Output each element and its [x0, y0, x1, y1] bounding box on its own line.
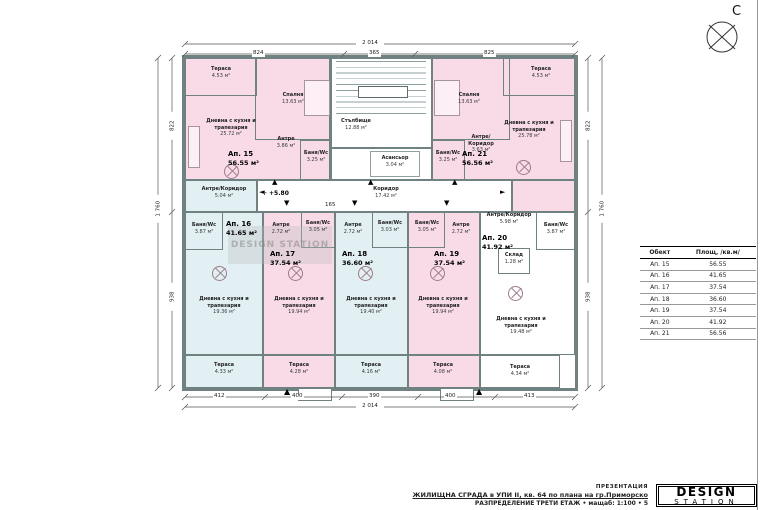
cell-object: Ап. 18: [640, 293, 680, 305]
room-label-bath-19: Баня/Wc 3.05 м²: [410, 220, 444, 233]
apartment-id: Ап. 17: [270, 250, 310, 259]
apartment-id: Ап. 18: [342, 250, 382, 259]
room-area: 2.72 м²: [266, 229, 296, 236]
room-area: 5.04 м²: [196, 193, 252, 200]
dim-right-total: 1 760: [600, 195, 606, 223]
room-area: 2.72 м²: [338, 229, 368, 236]
table-row: Ап. 18 36.60: [640, 293, 756, 305]
room-label-bath-15: Баня/Wc 3.25 м²: [301, 150, 331, 163]
room-area: 25.72 м²: [200, 131, 262, 138]
sofa-furniture: [560, 120, 572, 162]
room-label-antre-17: Антре 2.72 м²: [266, 222, 296, 235]
room-label-bath-21: Баня/Wc 3.25 м²: [433, 150, 463, 163]
room-area: 19.40 м²: [342, 309, 400, 316]
room-area: 4.08 м²: [424, 369, 462, 376]
cell-object: Ап. 19: [640, 305, 680, 317]
cell-object: Ап. 20: [640, 316, 680, 328]
title-block: ПРЕЗЕНТАЦИЯ ЖИЛИЩНА СГРАДА в УПИ II, кв.…: [340, 484, 648, 507]
room-name: Дневна с кухня и трапезария: [200, 118, 262, 131]
cell-area: 56.55: [680, 259, 756, 271]
table-row: Ап. 16 41.65: [640, 270, 756, 282]
room-area: 3.05 м²: [410, 227, 444, 234]
room-label-bedroom-15: Спалня 13.63 м²: [268, 92, 318, 105]
dining-table-icon: [358, 266, 373, 281]
room-label-terrace-17: Тераса 4.28 м²: [280, 362, 318, 375]
dim-left-seg: 938: [170, 283, 176, 311]
room-area: 3.25 м²: [433, 157, 463, 164]
dim-bottom-seg: 400: [291, 394, 304, 400]
dim-bottom-seg: 390: [368, 394, 381, 400]
dining-table-icon: [212, 266, 227, 281]
design-station-logo: DESIGN STATION: [656, 484, 757, 507]
room-area: 4.16 м²: [352, 369, 390, 376]
room-area: 2.72 м²: [446, 229, 476, 236]
right-arrow-icon: ►: [500, 189, 505, 196]
entrance-arrow-icon: ▲: [476, 388, 482, 396]
apartment-id: Ап. 20: [482, 234, 524, 243]
room-label-antre-19: Антре 2.72 м²: [446, 222, 476, 235]
service-rooms-zone: [512, 180, 575, 212]
room-label-corridor: Коридор 17.42 м²: [358, 186, 414, 199]
table-row: Ап. 21 56.56: [640, 328, 756, 340]
room-label-antre-18: Антре 2.72 м²: [338, 222, 368, 235]
room-area: 4.53 м²: [516, 73, 566, 80]
room-label-elevator: Асансьор 3.04 м²: [370, 155, 420, 168]
room-area: 17.42 м²: [358, 193, 414, 200]
presentation-label: ПРЕЗЕНТАЦИЯ: [340, 484, 648, 491]
down-arrow-icon: ▼: [284, 200, 289, 207]
room-label-terrace-16: Тераса 4.33 м²: [202, 362, 246, 375]
up-arrow-icon: ▲: [272, 179, 277, 186]
dim-left-total: 1 760: [156, 195, 162, 223]
dim-left-seg: 822: [170, 112, 176, 140]
dim-bottom-seg: 413: [523, 394, 536, 400]
apartment-area-table: Обект Площ, /кв.м/ Ап. 15 56.55 Ап. 16 4…: [640, 246, 756, 340]
cell-object: Ап. 21: [640, 328, 680, 340]
sofa-furniture: [188, 126, 200, 168]
compass-icon: [702, 16, 744, 60]
apartment-area: 37.54 м²: [434, 259, 474, 267]
room-label-bath-17: Баня/Wc 3.05 м²: [302, 220, 334, 233]
room-area: 4.33 м²: [202, 369, 246, 376]
level-marker: ✛ +5.80: [262, 190, 289, 197]
table-header-area: Площ, /кв.м/: [680, 247, 756, 259]
cell-area: 41.92: [680, 316, 756, 328]
dining-table-icon: [508, 286, 523, 301]
room-name: Дневна с кухня и трапезария: [196, 296, 252, 309]
apartment-18-label: Ап. 18 36.60 м²: [342, 250, 382, 267]
dim-right-seg: 822: [586, 112, 592, 140]
room-area: 3.25 м²: [301, 157, 331, 164]
room-name: Дневна с кухня и трапезария: [342, 296, 400, 309]
room-area: 3.87 м²: [187, 229, 221, 236]
room-name: Антре/Коридор: [482, 212, 536, 219]
apartment-area: 56.56 м²: [462, 159, 504, 167]
room-label-bedroom-21: Спалня 13.63 м²: [444, 92, 494, 105]
apartment-20-label: Ап. 20 41.92 м²: [482, 234, 524, 251]
room-name: Дневна с кухня и трапезария: [414, 296, 472, 309]
room-name: Баня/Wc: [410, 220, 444, 227]
sheet-title: РАЗПРЕДЕЛЕНИЕ ТРЕТИ ЕТАЖ • мащаб: 1:100 …: [340, 500, 648, 508]
room-area: 3.04 м²: [370, 162, 420, 169]
room-label-living-21: Дневна с кухня и трапезария 25.78 м²: [498, 120, 560, 140]
logo-text-design: DESIGN: [676, 486, 736, 498]
apartment-19-label: Ап. 19 37.54 м²: [434, 250, 474, 267]
room-label-staircase: Стълбище 12.88 м²: [334, 118, 378, 131]
room-label-antre-16: Антре/Коридор 5.04 м²: [196, 186, 252, 199]
dim-top-seg: 825: [483, 51, 496, 57]
dim-bottom-total: 2 014: [356, 404, 384, 410]
floor-plan-page: ▲ ▲ DESIGN STATION Тераса 4.53 м² Спалня…: [0, 0, 764, 510]
room-area: 3.86 м²: [272, 143, 300, 150]
apartment-id: Ап. 15: [228, 150, 270, 159]
room-label-living-18: Дневна с кухня и трапезария 19.40 м²: [342, 296, 400, 316]
left-arrow-icon: ◄: [259, 189, 264, 196]
room-area: 4.28 м²: [280, 369, 318, 376]
room-area: 3.05 м²: [302, 227, 334, 234]
cell-area: 37.54: [680, 305, 756, 317]
stair-landing: [358, 86, 408, 98]
cell-area: 41.65: [680, 270, 756, 282]
cell-area: 56.56: [680, 328, 756, 340]
room-label-living-15: Дневна с кухня и трапезария 25.72 м²: [200, 118, 262, 138]
table-header-object: Обект: [640, 247, 680, 259]
room-name: Антре/Коридор: [462, 134, 500, 147]
table-row: Ап. 20 41.92: [640, 316, 756, 328]
apartment-area: 37.54 м²: [270, 259, 310, 267]
level-value: +5.80: [269, 190, 289, 197]
dim-top-seg: 365: [368, 51, 381, 57]
room-area: 1.28 м²: [499, 259, 529, 266]
room-area: 5.98 м²: [482, 219, 536, 226]
north-compass: С: [702, 4, 756, 60]
table-row: Ап. 15 56.55: [640, 259, 756, 271]
room-label-living-17: Дневна с кухня и трапезария 19.94 м²: [270, 296, 328, 316]
room-label-bath-20: Баня/Wc 3.87 м²: [538, 222, 574, 235]
room-label-living-16: Дневна с кухня и трапезария 19.36 м²: [196, 296, 252, 316]
room-area: 3.03 м²: [373, 227, 407, 234]
cell-object: Ап. 15: [640, 259, 680, 271]
room-label-terrace-20: Тераса 4.34 м²: [500, 364, 540, 377]
room-area: 19.94 м²: [414, 309, 472, 316]
apartment-area: 56.55 м²: [228, 159, 270, 167]
apartment-area: 41.92 м²: [482, 243, 524, 251]
room-name: Баня/Wc: [301, 150, 331, 157]
room-area: 13.63 м²: [268, 99, 318, 106]
project-title: ЖИЛИЩНА СГРАДА в УПИ II, кв. 64 по плана…: [340, 491, 648, 499]
cell-area: 37.54: [680, 282, 756, 294]
apartment-area: 36.60 м²: [342, 259, 382, 267]
table-row: Ап. 17 37.54: [640, 282, 756, 294]
apartment-id: Ап. 19: [434, 250, 474, 259]
room-label-antre-15: Антре 3.86 м²: [272, 136, 300, 149]
room-label-living-20: Дневна с кухня и трапезария 19.48 м²: [492, 316, 550, 336]
cell-object: Ап. 17: [640, 282, 680, 294]
apartment-id: Ап. 21: [462, 150, 504, 159]
apartment-15-label: Ап. 15 56.55 м²: [228, 150, 270, 167]
room-name: Баня/Wc: [433, 150, 463, 157]
down-arrow-icon: ▼: [352, 200, 357, 207]
dim-bottom-seg: 400: [444, 394, 457, 400]
room-label-bath-16: Баня/Wc 3.87 м²: [187, 222, 221, 235]
room-area: 19.48 м²: [492, 329, 550, 336]
room-label-terrace-15: Тераса 4.53 м²: [196, 66, 246, 79]
room-area: 13.63 м²: [444, 99, 494, 106]
up-arrow-icon: ▲: [368, 179, 373, 186]
room-label-terrace-21: Тераса 4.53 м²: [516, 66, 566, 79]
dining-table-icon: [288, 266, 303, 281]
table-header-row: Обект Площ, /кв.м/: [640, 247, 756, 259]
apartment-16-label: Ап. 16 41.65 м²: [226, 220, 266, 237]
room-label-living-19: Дневна с кухня и трапезария 19.94 м²: [414, 296, 472, 316]
apartment-id: Ап. 16: [226, 220, 266, 229]
room-name: Дневна с кухня и трапезария: [270, 296, 328, 309]
table-row: Ап. 19 37.54: [640, 305, 756, 317]
room-name: Антре/Коридор: [196, 186, 252, 193]
room-area: 3.87 м²: [538, 229, 574, 236]
room-name: Дневна с кухня и трапезария: [498, 120, 560, 133]
room-name: Баня/Wc: [302, 220, 334, 227]
apartment-area: 41.65 м²: [226, 229, 266, 237]
room-label-terrace-19: Тераса 4.08 м²: [424, 362, 462, 375]
dim-bottom-seg: 412: [213, 394, 226, 400]
down-arrow-icon: ▼: [444, 200, 449, 207]
apartment-17-label: Ап. 17 37.54 м²: [270, 250, 310, 267]
room-area: 12.88 м²: [334, 125, 378, 132]
up-arrow-icon: ▲: [452, 179, 457, 186]
dim-top-total: 2 014: [356, 41, 384, 47]
corridor-dimension: 165: [324, 203, 337, 209]
dining-table-icon: [516, 160, 531, 175]
room-area: 4.53 м²: [196, 73, 246, 80]
dining-table-icon: [430, 266, 445, 281]
cell-object: Ап. 16: [640, 270, 680, 282]
room-area: 19.36 м²: [196, 309, 252, 316]
room-name: Дневна с кухня и трапезария: [492, 316, 550, 329]
entrance-arrow-icon: ▲: [284, 388, 290, 396]
logo-text-station: STATION: [674, 499, 739, 506]
room-label-bath-18: Баня/Wc 3.03 м²: [373, 220, 407, 233]
room-name: Баня/Wc: [373, 220, 407, 227]
room-label-antre-20: Антре/Коридор 5.98 м²: [482, 212, 536, 225]
room-area: 4.34 м²: [500, 371, 540, 378]
room-name: Баня/Wc: [187, 222, 221, 229]
room-area: 19.94 м²: [270, 309, 328, 316]
room-label-storage-20: Склад 1.28 м²: [499, 252, 529, 265]
page-margin-line: [757, 0, 758, 510]
cell-area: 36.60: [680, 293, 756, 305]
room-area: 25.78 м²: [498, 133, 560, 140]
dim-top-seg: 824: [252, 51, 265, 57]
room-label-terrace-18: Тераса 4.16 м²: [352, 362, 390, 375]
apartment-21-label: Ап. 21 56.56 м²: [462, 150, 504, 167]
dim-right-seg: 938: [586, 283, 592, 311]
